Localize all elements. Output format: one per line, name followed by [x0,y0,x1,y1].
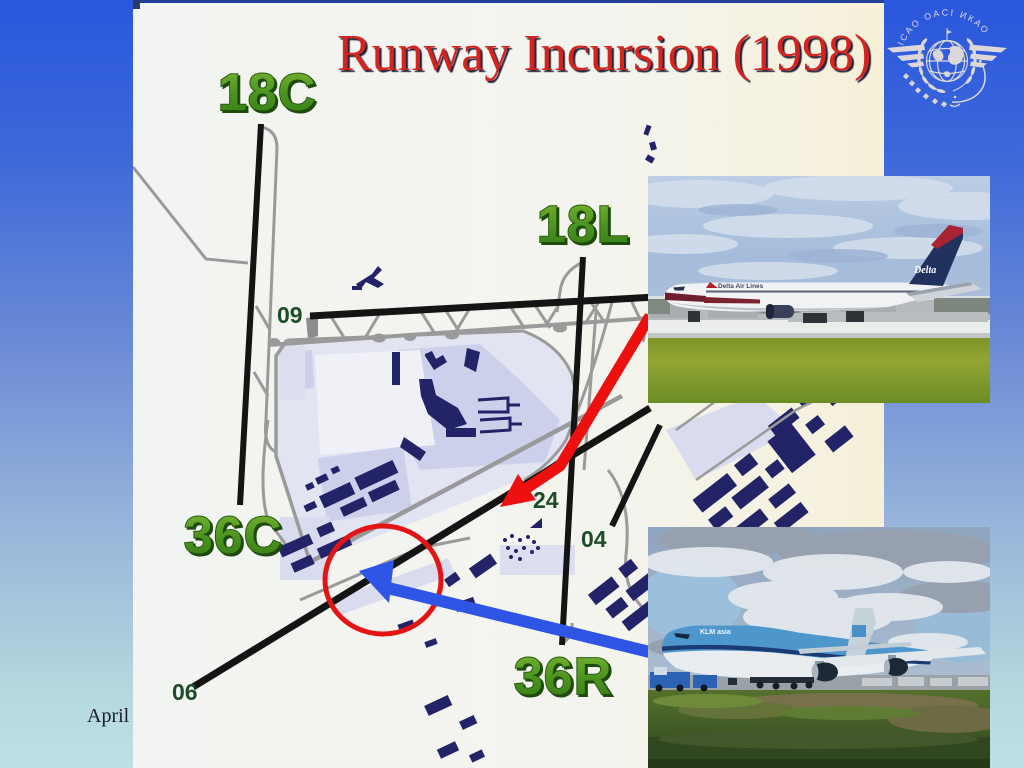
svg-text:06: 06 [172,679,198,705]
svg-text:KLM asia: KLM asia [700,629,731,636]
svg-text:18C: 18C [218,64,316,122]
svg-text:Delta: Delta [913,265,936,276]
svg-text:24: 24 [533,487,559,513]
svg-text:04: 04 [581,526,607,552]
svg-text:18L: 18L [537,196,630,254]
svg-text:Delta Air Lines: Delta Air Lines [718,283,764,290]
svg-text:09: 09 [277,302,303,328]
svg-text:36R: 36R [514,648,612,706]
svg-text:36C: 36C [184,507,282,565]
